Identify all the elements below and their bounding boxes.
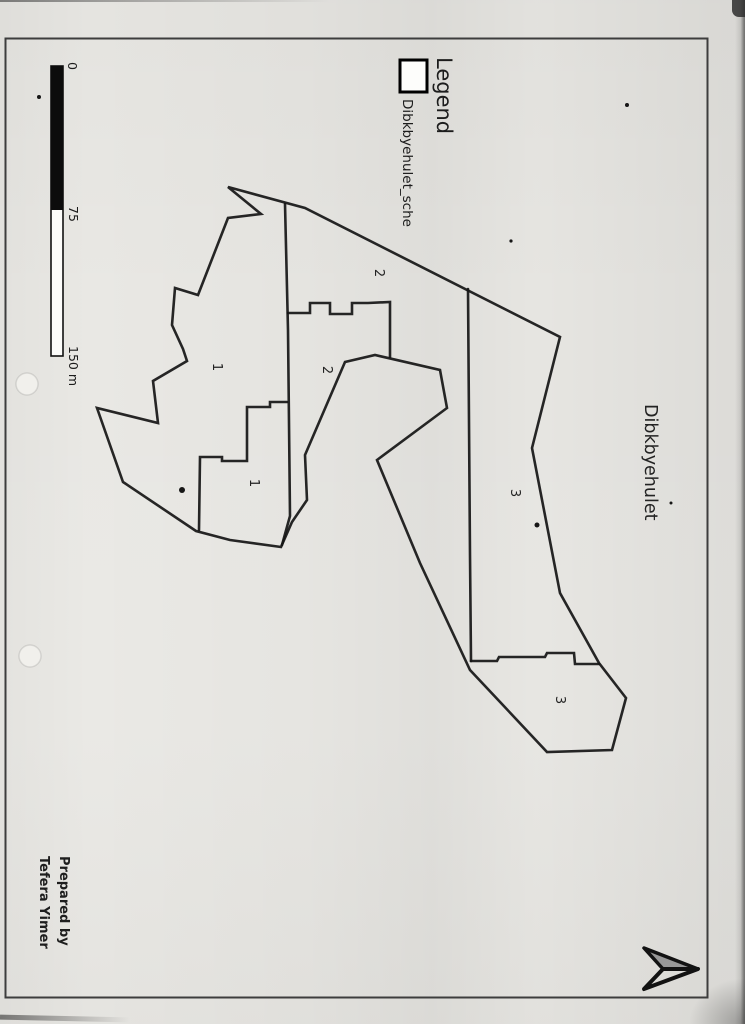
punch-holes	[16, 373, 41, 667]
parcel-label-2: 2	[319, 366, 334, 374]
scale-bar: 0 75 150 m	[51, 62, 81, 386]
north-arrow-lower-half	[644, 969, 698, 989]
map-dot	[535, 523, 540, 528]
map-dot	[670, 502, 673, 505]
north-arrow-upper-half	[644, 948, 698, 969]
parcel-label-3: 3	[552, 696, 567, 704]
map-canvas: 0 75 150 m Legend Dibkbyehulet_sche Dibk…	[0, 0, 745, 1024]
scale-bar-filled-segment	[51, 66, 63, 210]
map-dots	[37, 95, 673, 528]
punch-hole	[16, 373, 38, 395]
parcel-label-1: 1	[246, 479, 261, 487]
punch-hole	[19, 645, 41, 667]
credits: Prepared by Tefera Yimer	[36, 856, 71, 949]
legend: Legend Dibkbyehulet_sche	[399, 57, 456, 227]
boundary-south-step-line	[471, 653, 599, 664]
scan-corner-mark-top-right	[732, 0, 745, 17]
map-dot	[509, 239, 512, 242]
map-dot	[37, 95, 41, 99]
credit-line-2: Tefera Yimer	[36, 856, 51, 949]
scale-tick-75: 75	[66, 206, 81, 222]
parcel-label-3: 3	[507, 489, 522, 497]
legend-title: Legend	[432, 57, 456, 134]
scale-tick-150m: 150 m	[66, 346, 81, 386]
parcel-label-2: 2	[371, 269, 386, 277]
parcel-label-1: 1	[209, 363, 224, 371]
boundary-outer-boundary	[97, 187, 626, 752]
scanned-page: 0 75 150 m Legend Dibkbyehulet_sche Dibk…	[0, 0, 745, 1024]
map-dot	[625, 103, 629, 107]
credit-line-1: Prepared by	[56, 856, 71, 946]
boundary-divider-west	[282, 204, 290, 545]
map-title: Dibkbyehulet	[640, 404, 660, 521]
legend-swatch-icon	[400, 60, 427, 92]
north-arrow-icon	[644, 948, 698, 989]
map-frame-border	[6, 39, 708, 998]
boundary-divider-east	[468, 289, 471, 661]
map-dot	[179, 487, 185, 493]
scanned-map-page: { "page": { "background": "#e9e8e4" }, "…	[0, 0, 745, 1024]
legend-item-label: Dibkbyehulet_sche	[399, 99, 415, 227]
boundary-staircase-line	[199, 402, 287, 530]
boundary-castle-step-line	[288, 302, 390, 357]
parcel-boundaries	[97, 187, 626, 752]
scale-tick-0: 0	[65, 62, 80, 70]
